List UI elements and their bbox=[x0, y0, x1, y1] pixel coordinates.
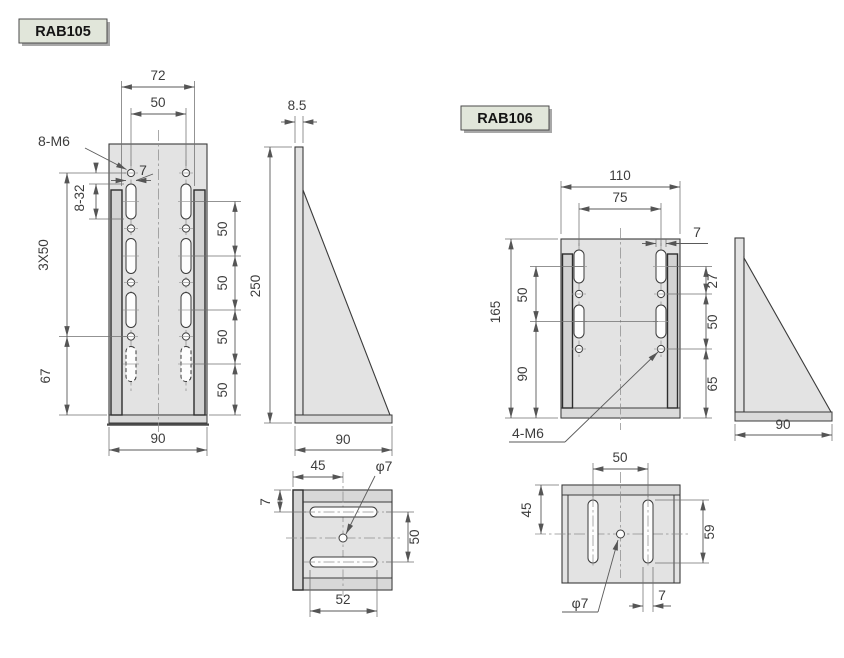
dim-105-slot-width: 7 bbox=[139, 162, 147, 178]
dim-106b-hole-dia: φ7 bbox=[572, 595, 589, 611]
dim-105b-hole-dia: φ7 bbox=[376, 458, 393, 474]
rab106-bottom-view: 50 45 59 φ7 7 bbox=[519, 450, 717, 612]
dim-106-upper-pitch: 50 bbox=[515, 287, 530, 302]
rab105-label-text: RAB105 bbox=[35, 24, 91, 40]
dim-106b-slot-width: 7 bbox=[658, 587, 666, 603]
dim-105-height: 250 bbox=[248, 275, 263, 298]
dim-105-bottom-offset: 67 bbox=[38, 368, 53, 383]
dim-106-hole-span: 75 bbox=[612, 190, 627, 205]
dim-105b-slot-length: 52 bbox=[335, 592, 350, 607]
dim-105-base-width: 90 bbox=[150, 431, 165, 446]
rab105-bottom-view: 45 φ7 7 50 52 bbox=[258, 458, 422, 617]
callout-105-thread: 8-M6 bbox=[38, 133, 70, 149]
dim-105-depth: 90 bbox=[335, 432, 350, 447]
rab106-label-text: RAB106 bbox=[477, 111, 533, 127]
dim-105-pitch-1: 50 bbox=[215, 221, 230, 236]
callout-106-thread: 4-M6 bbox=[512, 425, 544, 441]
dim-105-pitch-2: 50 bbox=[215, 275, 230, 290]
dim-106b-center-offset: 45 bbox=[519, 502, 534, 517]
rab105-side-view: 8.5 250 90 bbox=[248, 98, 392, 456]
dim-106-depth: 90 bbox=[775, 417, 790, 432]
dim-106b-slot-length: 59 bbox=[702, 524, 717, 539]
dim-106-lower-span: 90 bbox=[515, 366, 530, 381]
dim-106-height: 165 bbox=[488, 301, 503, 324]
dim-106b-slot-span: 50 bbox=[612, 450, 627, 465]
dim-105b-slot-pitch: 50 bbox=[407, 529, 422, 544]
dim-105-slot-dim: 8-32 bbox=[72, 184, 87, 211]
rab105-part-label: RAB105 bbox=[19, 19, 110, 46]
dim-105-row-pitch: 3X50 bbox=[36, 239, 51, 271]
rab106-front-view: 110 75 7 27 50 65 165 50 90 4-M6 bbox=[488, 168, 720, 442]
dim-106-slot-width: 7 bbox=[693, 224, 701, 240]
dim-105-hole-span: 50 bbox=[150, 95, 165, 110]
dim-105-pitch-3: 50 bbox=[215, 329, 230, 344]
dim-105b-edge-offset: 7 bbox=[258, 498, 273, 506]
rab106-side-view: 90 bbox=[735, 238, 832, 441]
dim-105-pitch-4: 50 bbox=[215, 382, 230, 397]
dim-106-hole-pitch: 50 bbox=[705, 314, 720, 329]
rab105-front-view: 72 50 8-M6 7 8-32 3X50 67 bbox=[36, 68, 241, 456]
technical-drawing-page: RAB105 72 bbox=[0, 0, 844, 658]
dim-106-width: 110 bbox=[609, 168, 631, 183]
rab106-part-label: RAB106 bbox=[461, 106, 552, 133]
dim-105-inner-width: 72 bbox=[150, 68, 165, 83]
dim-105b-center-offset: 45 bbox=[310, 458, 325, 473]
dim-105-thickness: 8.5 bbox=[288, 98, 307, 113]
dim-106-slot-hole-gap: 27 bbox=[705, 273, 720, 288]
dim-106-bottom-offset: 65 bbox=[705, 376, 720, 391]
bracket-drawing-svg: RAB105 72 bbox=[0, 0, 844, 658]
